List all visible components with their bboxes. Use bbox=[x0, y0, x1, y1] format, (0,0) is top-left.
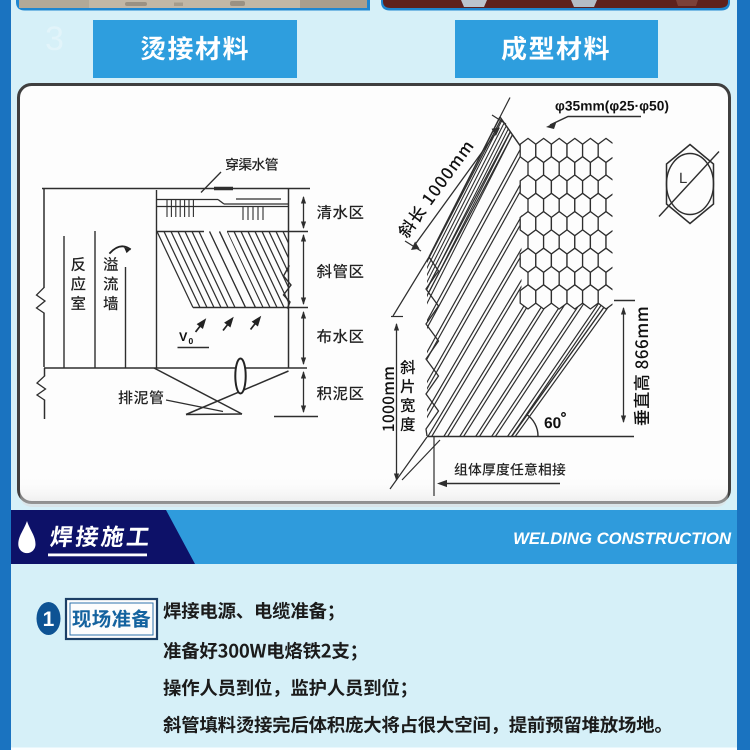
svg-text:WELDING CONSTRUCTION: WELDING CONSTRUCTION bbox=[513, 529, 732, 548]
svg-text:1: 1 bbox=[43, 608, 55, 631]
